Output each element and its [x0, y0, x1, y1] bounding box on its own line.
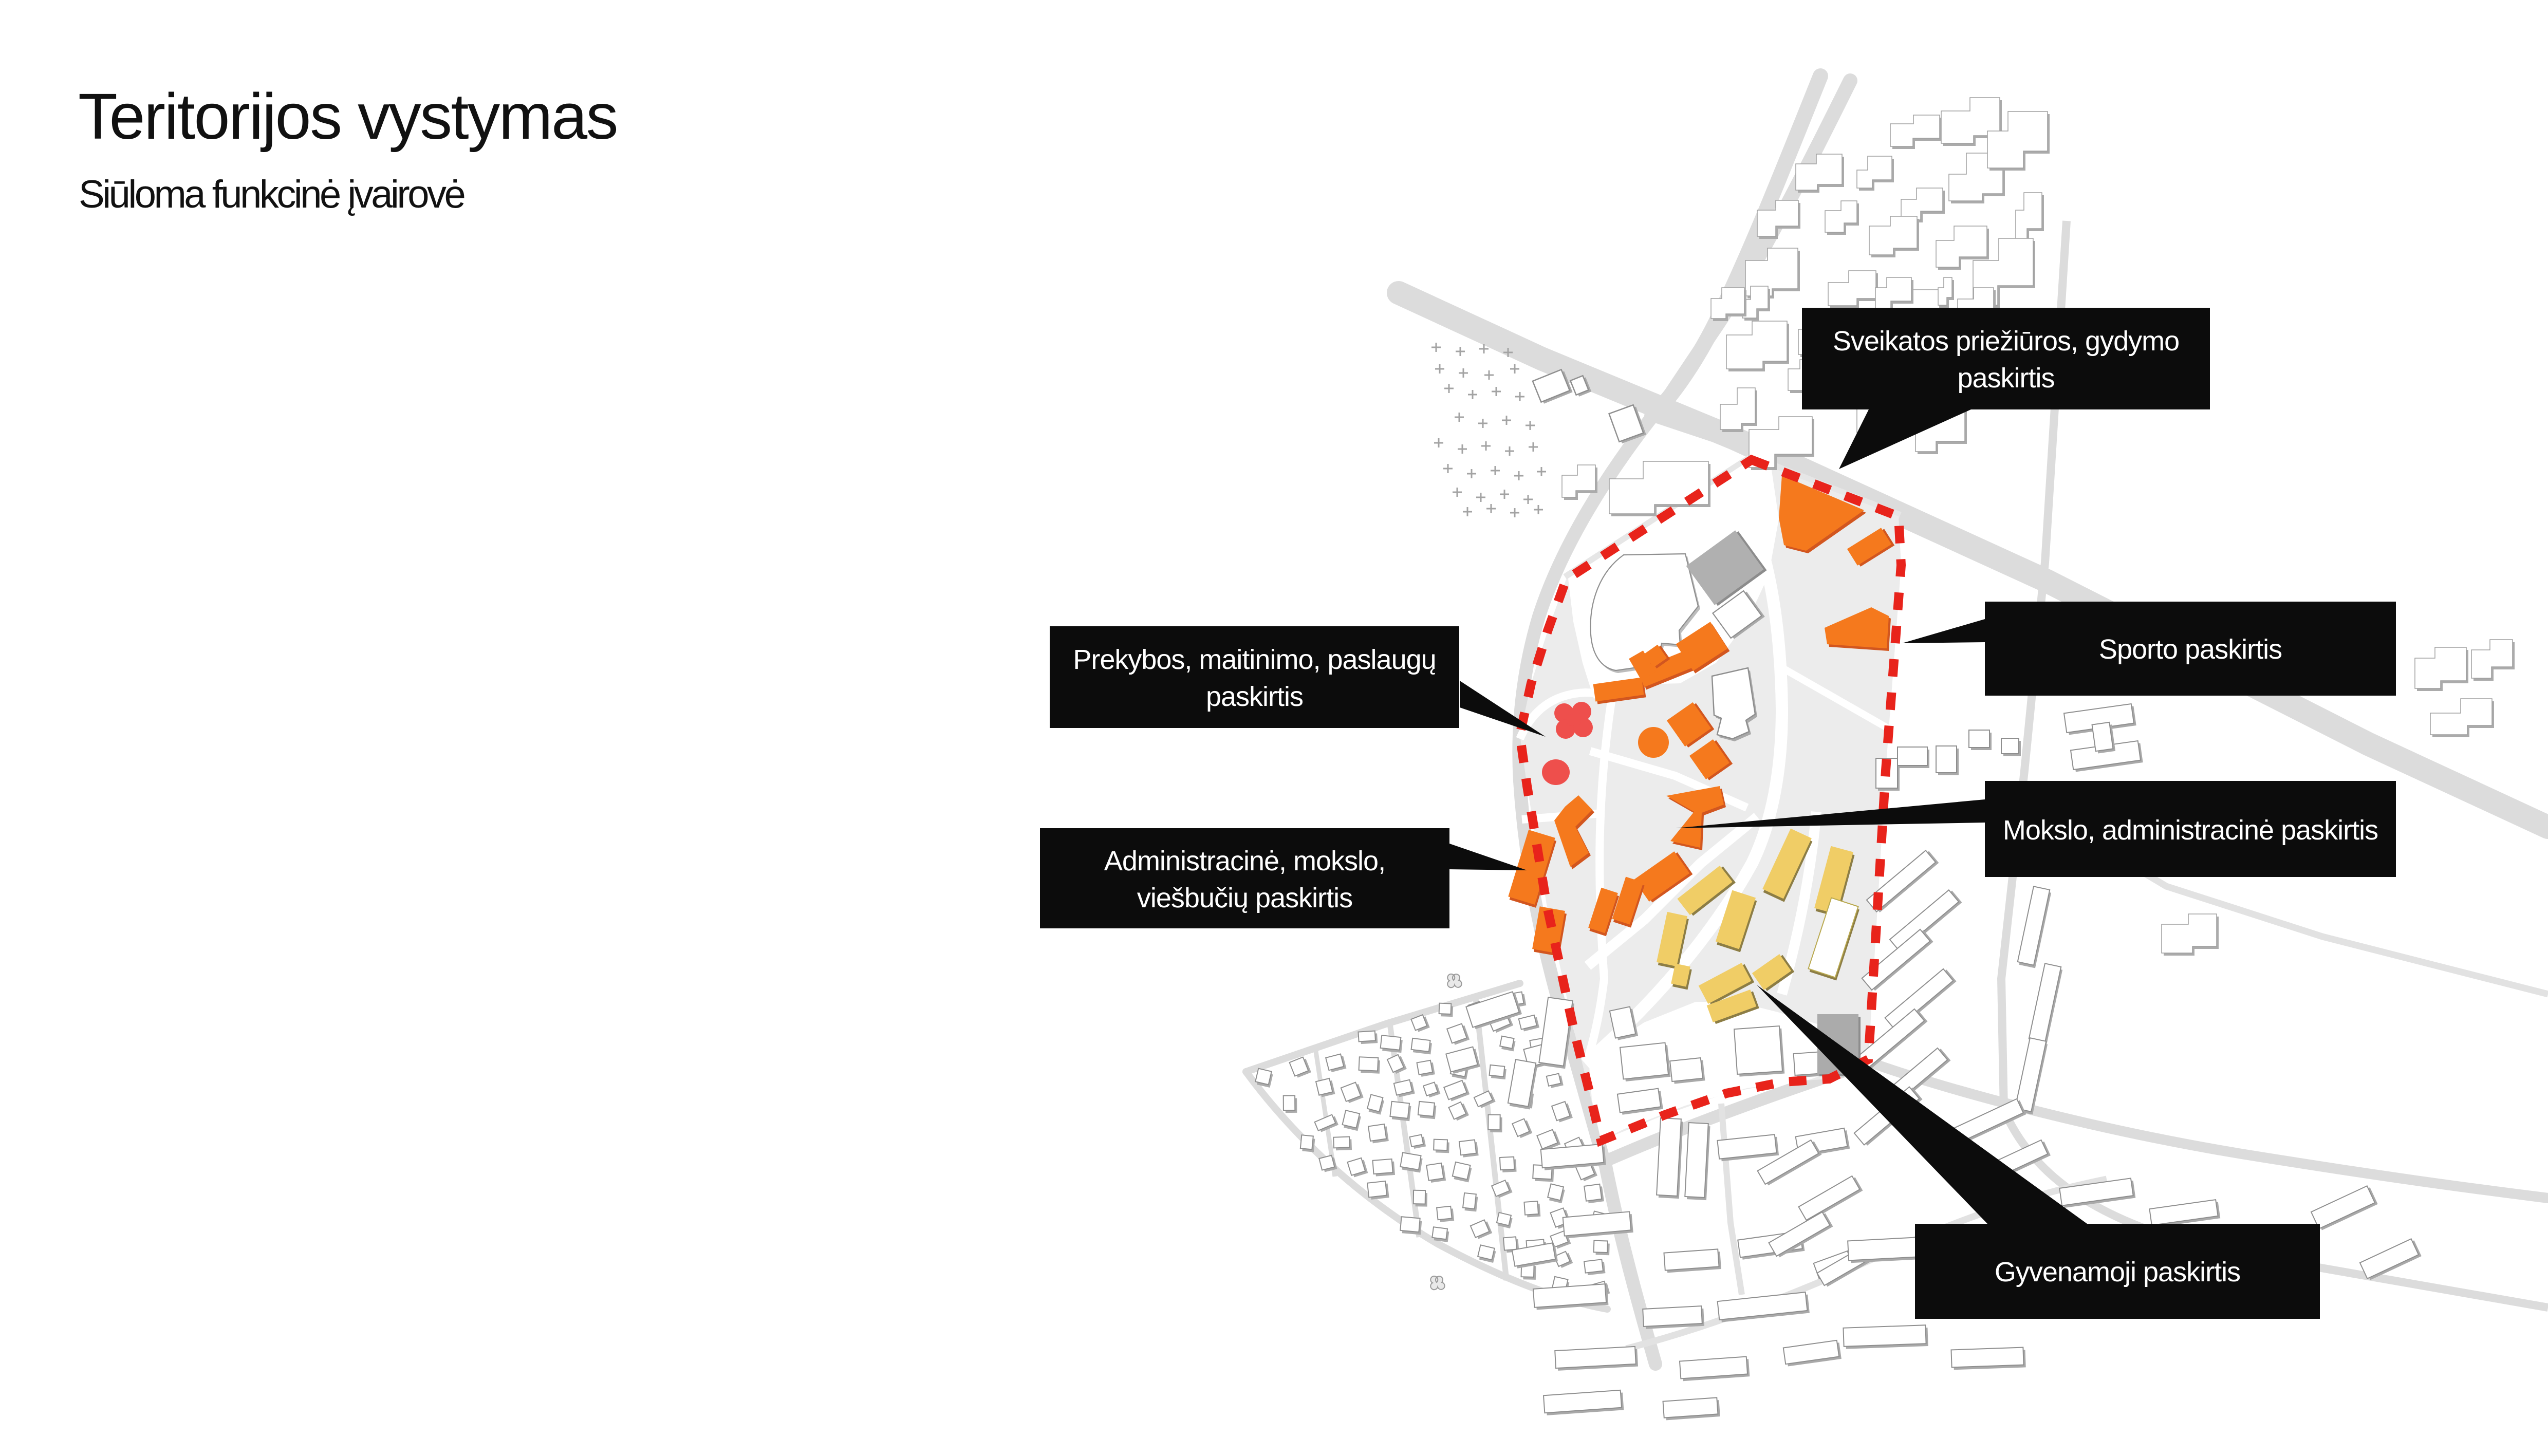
- svg-text:paskirtis: paskirtis: [1206, 681, 1303, 712]
- svg-text:Administracinė, mokslo,: Administracinė, mokslo,: [1104, 846, 1385, 876]
- svg-text:Gyvenamoji paskirtis: Gyvenamoji paskirtis: [1995, 1257, 2240, 1287]
- svg-text:Sveikatos priežiūros, gydymo: Sveikatos priežiūros, gydymo: [1833, 326, 2179, 357]
- svg-text:Teritorijos vystymas: Teritorijos vystymas: [78, 80, 617, 153]
- svg-text:Prekybos, maitinimo, paslaugų: Prekybos, maitinimo, paslaugų: [1073, 644, 1436, 675]
- svg-text:Sporto paskirtis: Sporto paskirtis: [2099, 634, 2282, 665]
- svg-text:Siūloma funkcinė įvairovė: Siūloma funkcinė įvairovė: [79, 173, 464, 216]
- svg-text:viešbučių paskirtis: viešbučių paskirtis: [1137, 883, 1352, 913]
- svg-text:Mokslo, administracinė paskirt: Mokslo, administracinė paskirtis: [2003, 815, 2378, 846]
- svg-text:paskirtis: paskirtis: [1957, 363, 2054, 394]
